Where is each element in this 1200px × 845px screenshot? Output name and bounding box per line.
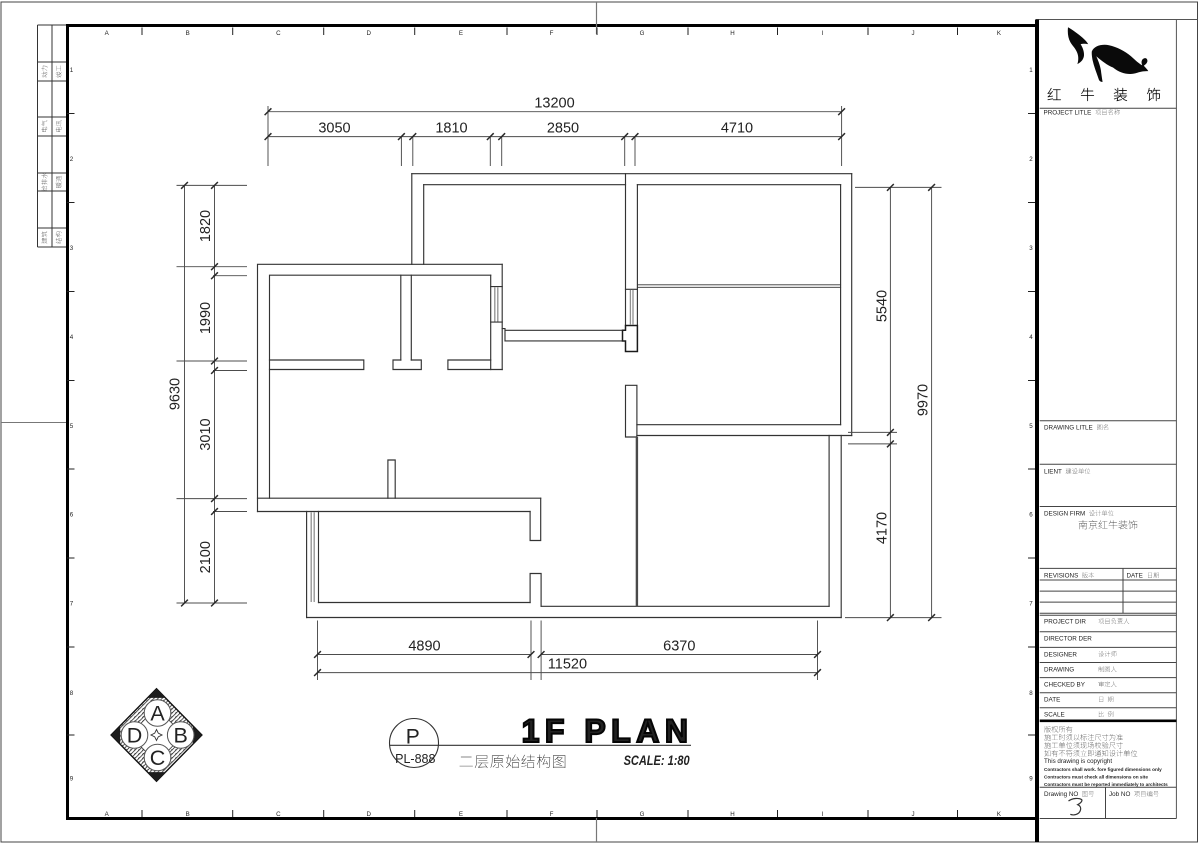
svg-text:G: G: [640, 811, 645, 818]
svg-text:5: 5: [70, 423, 74, 430]
svg-text:REVISIONS: REVISIONS: [1044, 573, 1078, 580]
svg-text:Job NO: Job NO: [1109, 791, 1130, 798]
svg-text:DIRECTOR DER: DIRECTOR DER: [1044, 636, 1092, 643]
svg-text:Contractors shall work. fore f: Contractors shall work. fore figured dim…: [1044, 767, 1162, 772]
svg-text:B: B: [174, 724, 188, 748]
svg-text:4890: 4890: [408, 638, 440, 654]
svg-text:2850: 2850: [547, 120, 579, 136]
svg-text:9630: 9630: [168, 378, 184, 410]
svg-text:3050: 3050: [318, 120, 350, 136]
svg-text:11520: 11520: [548, 656, 587, 672]
svg-text:PROJECT LITLE: PROJECT LITLE: [1044, 110, 1092, 117]
svg-text:F: F: [550, 30, 554, 37]
svg-text:8: 8: [1029, 690, 1033, 697]
svg-text:E: E: [459, 30, 463, 37]
svg-text:P: P: [406, 726, 420, 749]
svg-text:1820: 1820: [198, 210, 214, 242]
svg-text:B: B: [186, 30, 190, 37]
svg-text:B: B: [186, 811, 190, 818]
svg-text:2: 2: [70, 156, 74, 163]
svg-text:J: J: [911, 30, 914, 37]
svg-text:DRAWING: DRAWING: [1044, 667, 1074, 674]
svg-text:Drawing NO: Drawing NO: [1044, 791, 1078, 798]
svg-text:D: D: [366, 30, 371, 37]
svg-text:D: D: [127, 724, 143, 748]
svg-text:H: H: [730, 811, 734, 818]
svg-text:6: 6: [70, 512, 74, 519]
svg-text:PROJECT DIR: PROJECT DIR: [1044, 619, 1086, 626]
svg-text:7: 7: [70, 601, 74, 608]
svg-text:1F PLAN: 1F PLAN: [522, 713, 694, 749]
svg-text:1990: 1990: [198, 302, 214, 334]
svg-text:9970: 9970: [916, 384, 932, 416]
svg-text:3: 3: [1029, 245, 1033, 252]
svg-text:2: 2: [1029, 156, 1033, 163]
svg-text:3: 3: [70, 245, 74, 252]
svg-text:4: 4: [1029, 334, 1033, 341]
svg-text:Contractors must check all dim: Contractors must check all dimensions on…: [1044, 775, 1148, 780]
svg-text:DESIGNER: DESIGNER: [1044, 651, 1077, 658]
svg-text:9: 9: [70, 776, 74, 783]
svg-text:4710: 4710: [721, 120, 753, 136]
svg-text:9: 9: [1029, 776, 1033, 783]
svg-text:8: 8: [70, 690, 74, 697]
svg-text:SCALE: 1:80: SCALE: 1:80: [624, 753, 690, 768]
svg-text:DESIGN FIRM: DESIGN FIRM: [1044, 511, 1085, 518]
svg-text:SCALE: SCALE: [1044, 712, 1065, 719]
svg-text:C: C: [150, 746, 166, 770]
svg-text:CHECKED BY: CHECKED BY: [1044, 682, 1086, 689]
svg-text:Contractors must be reported i: Contractors must be reported immediately…: [1044, 782, 1168, 787]
svg-text:4170: 4170: [874, 512, 890, 544]
svg-text:6: 6: [1029, 512, 1033, 519]
svg-text:4: 4: [70, 334, 74, 341]
svg-text:D: D: [366, 811, 371, 818]
svg-text:G: G: [640, 30, 645, 37]
svg-text:5540: 5540: [874, 290, 890, 322]
svg-text:H: H: [730, 30, 734, 37]
svg-text:C: C: [276, 811, 281, 818]
svg-text:E: E: [459, 811, 463, 818]
svg-text:PL-888: PL-888: [395, 752, 435, 766]
svg-text:7: 7: [1029, 601, 1033, 608]
svg-text:1810: 1810: [435, 120, 467, 136]
svg-text:F: F: [550, 811, 554, 818]
svg-text:DRAWING LITLE: DRAWING LITLE: [1044, 425, 1093, 432]
svg-text:J: J: [911, 811, 914, 818]
svg-text:1: 1: [1029, 67, 1033, 74]
svg-text:1: 1: [70, 67, 74, 74]
svg-text:LIENT: LIENT: [1044, 469, 1062, 476]
svg-text:3010: 3010: [198, 418, 214, 450]
svg-text:2100: 2100: [198, 541, 214, 573]
svg-text:5: 5: [1029, 423, 1033, 430]
svg-text:A: A: [150, 702, 165, 726]
svg-text:This drawing is copyright: This drawing is copyright: [1044, 758, 1112, 765]
svg-text:C: C: [276, 30, 281, 37]
svg-text:I: I: [822, 30, 824, 37]
svg-text:DATE: DATE: [1127, 573, 1143, 580]
svg-text:13200: 13200: [534, 96, 574, 112]
svg-text:6370: 6370: [663, 638, 695, 654]
svg-text:DATE: DATE: [1044, 697, 1060, 704]
svg-text:I: I: [822, 811, 824, 818]
